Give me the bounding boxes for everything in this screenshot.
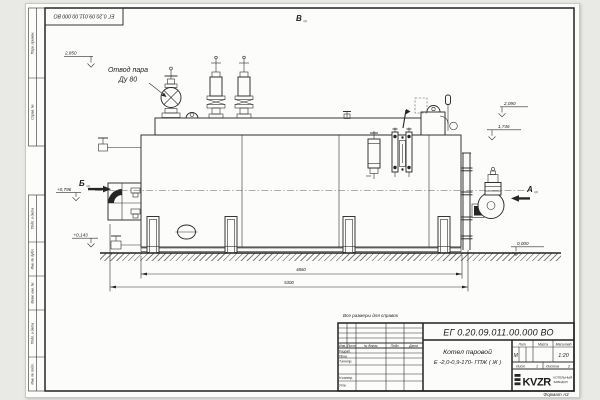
margin-label: Перв. примен. (31, 32, 35, 55)
top-left-stamp: ЕГ 0.20.09.011.00.000 ВО (45, 8, 123, 25)
blowdown-valve-lower (111, 236, 141, 249)
margin-label: Взам. инв. № (31, 282, 35, 303)
elevation-value: 2,090 (503, 101, 516, 106)
burner-motor (485, 183, 501, 196)
steam-drum (155, 106, 445, 135)
lit-value: М (514, 353, 519, 359)
lit-mass-scale: Лит. Масса Масштаб (518, 343, 572, 347)
dimension-5300: 5300 (110, 224, 468, 292)
elevation-1746: 1,746 (487, 124, 521, 140)
front-nozzle (131, 188, 140, 197)
mass-header: Масса (538, 343, 548, 347)
format-label: Формат А3 (543, 392, 569, 397)
view-label-v: В (2) (296, 14, 307, 23)
title-doc-number: ЕГ 0.20.09.011.00.000 ВО (443, 328, 553, 338)
view-sheet-ref: (2) (535, 190, 538, 194)
sheets-label: Листов (545, 364, 559, 368)
logo-text: KVZR (523, 377, 552, 389)
phantom-outline (415, 98, 427, 113)
logo-subtext: КОТЕЛЬНЫЙ (554, 376, 573, 380)
damper-quadrant (108, 189, 122, 203)
callout-text: Ду 80 (118, 77, 137, 84)
support-leg (147, 217, 159, 253)
drawing-viewer: Перв. примен. Справ. № Подп. и дата Инв.… (0, 0, 600, 400)
elevation-value: 0,000 (517, 241, 529, 246)
view-letter: В (296, 14, 302, 23)
sheets-value: 2 (567, 364, 570, 368)
rear-downcomer-pipe (461, 153, 473, 250)
safety-valve (235, 56, 253, 118)
drum-end-housing (421, 112, 445, 135)
view-letter: Б (79, 179, 85, 188)
lever-handle (403, 109, 411, 128)
elevation-value: +0,796 (57, 187, 72, 192)
callout-text: Отвод пара (108, 66, 148, 74)
steam-outlet-callout: Отвод пара Ду 80 (108, 66, 167, 97)
role-utv: Утв. (339, 384, 347, 388)
burner-assembly (472, 167, 504, 218)
sample-valve-upper (98, 138, 141, 151)
front-smokebox (108, 183, 141, 220)
view-arrow-a (511, 195, 530, 202)
support-leg (438, 217, 450, 253)
drawing-canvas: Перв. примен. Справ. № Подп. и дата Инв.… (0, 0, 600, 400)
col-izm: Изм. (339, 344, 346, 348)
drum-nozzle (343, 112, 351, 119)
role-prov: Пров. (339, 354, 348, 358)
boiler-shell (141, 135, 461, 252)
sheet-value: 1 (536, 364, 538, 368)
drum-dome (427, 106, 440, 112)
elevation-2090: 2,090 (499, 101, 529, 117)
manhole (176, 225, 198, 239)
steam-outlet-valve (161, 67, 181, 117)
dim-value: 5300 (284, 280, 294, 285)
kvzr-logo: KVZR КОТЕЛЬНЫЙ ЗАВОД.РУ (515, 374, 573, 389)
elevation-value: 2,850 (64, 51, 77, 56)
view-sheet-ref: (2) (87, 184, 90, 188)
elevation-2850: 2,850 (64, 51, 95, 68)
elevation-0796: +0,796 (56, 187, 81, 201)
logo-subtext: ЗАВОД.РУ (554, 380, 569, 384)
sheet-label: Лист (515, 364, 525, 368)
margin-label: Инв. № подл. (31, 363, 35, 384)
water-column (366, 131, 380, 179)
inverted-doc-number: ЕГ 0.20.09.011.00.000 ВО (54, 13, 115, 19)
title-block: Изм. Лист № докум. Подп. Дата Разраб. Пр… (338, 323, 574, 391)
margin-label: Справ. № (31, 104, 35, 120)
product-name: Котел паровой (443, 348, 492, 356)
view-sheet-ref: (2) (304, 19, 307, 23)
reference-note: Все размеры для справок (343, 313, 399, 318)
margin-labels: Перв. примен. Справ. № Подп. и дата Инв.… (31, 32, 35, 385)
col-date: Дата (408, 344, 418, 348)
margin-label: Подп. и дата (31, 323, 35, 344)
role-nkontr: Н.контр. (339, 376, 353, 380)
view-label-a: А (2) (511, 185, 538, 202)
front-nozzle (131, 209, 140, 218)
scale-header: Масштаб (556, 343, 572, 347)
role-razrab: Разраб. (339, 349, 351, 353)
support-leg (343, 217, 355, 253)
base-rail (141, 248, 461, 252)
elevation-value: +0,143 (74, 232, 89, 237)
product-designation: Е -2,0-0,9-170- ГПЖ ( Ж ) (434, 360, 501, 366)
support-leg (225, 217, 237, 253)
safety-valve (207, 56, 225, 118)
sheet-row: Лист 1 Листов 2 (515, 364, 570, 368)
margin-label: Инв. № дубл. (31, 249, 35, 270)
margin-label: Подп. и дата (31, 208, 35, 229)
elevation-value: 1,746 (498, 124, 510, 129)
elevation-0143: +0,143 (72, 232, 98, 247)
col-sign: Подп. (391, 344, 400, 348)
role-tkontr: Т.контр. (339, 360, 352, 364)
col-doc: № докум. (364, 344, 379, 348)
scale-value: 1:20 (558, 353, 569, 359)
lit-header: Лит. (518, 343, 527, 347)
dim-value: 4860 (296, 267, 306, 272)
col-list: Лист (346, 344, 356, 348)
view-letter: А (526, 185, 533, 194)
dimension-4860: 4860 (141, 255, 462, 279)
